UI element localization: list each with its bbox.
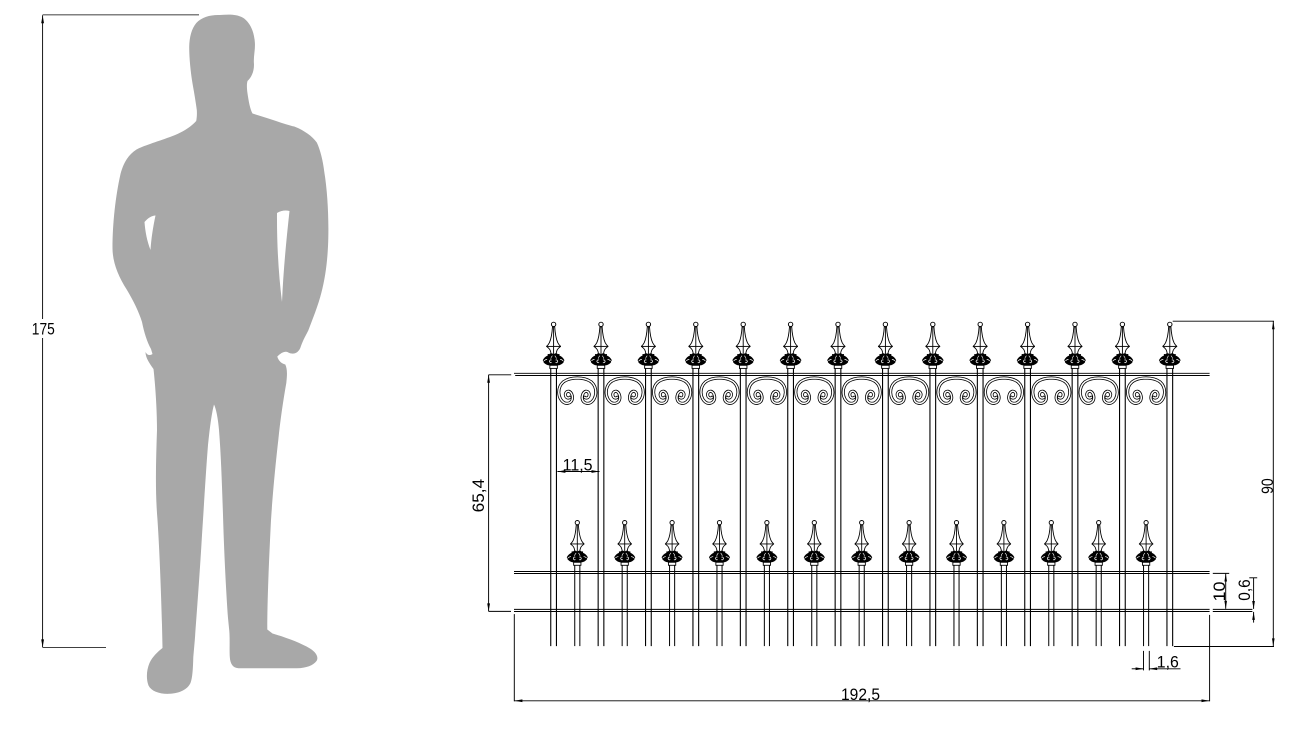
svg-text:0,6: 0,6: [1235, 579, 1254, 601]
svg-text:10: 10: [1210, 582, 1229, 602]
svg-text:175: 175: [32, 320, 55, 339]
svg-text:192,5: 192,5: [841, 685, 880, 704]
svg-text:65,4: 65,4: [469, 479, 488, 512]
svg-text:1,6: 1,6: [1157, 652, 1179, 671]
svg-text:11,5: 11,5: [563, 455, 593, 474]
svg-text:90: 90: [1258, 478, 1277, 494]
